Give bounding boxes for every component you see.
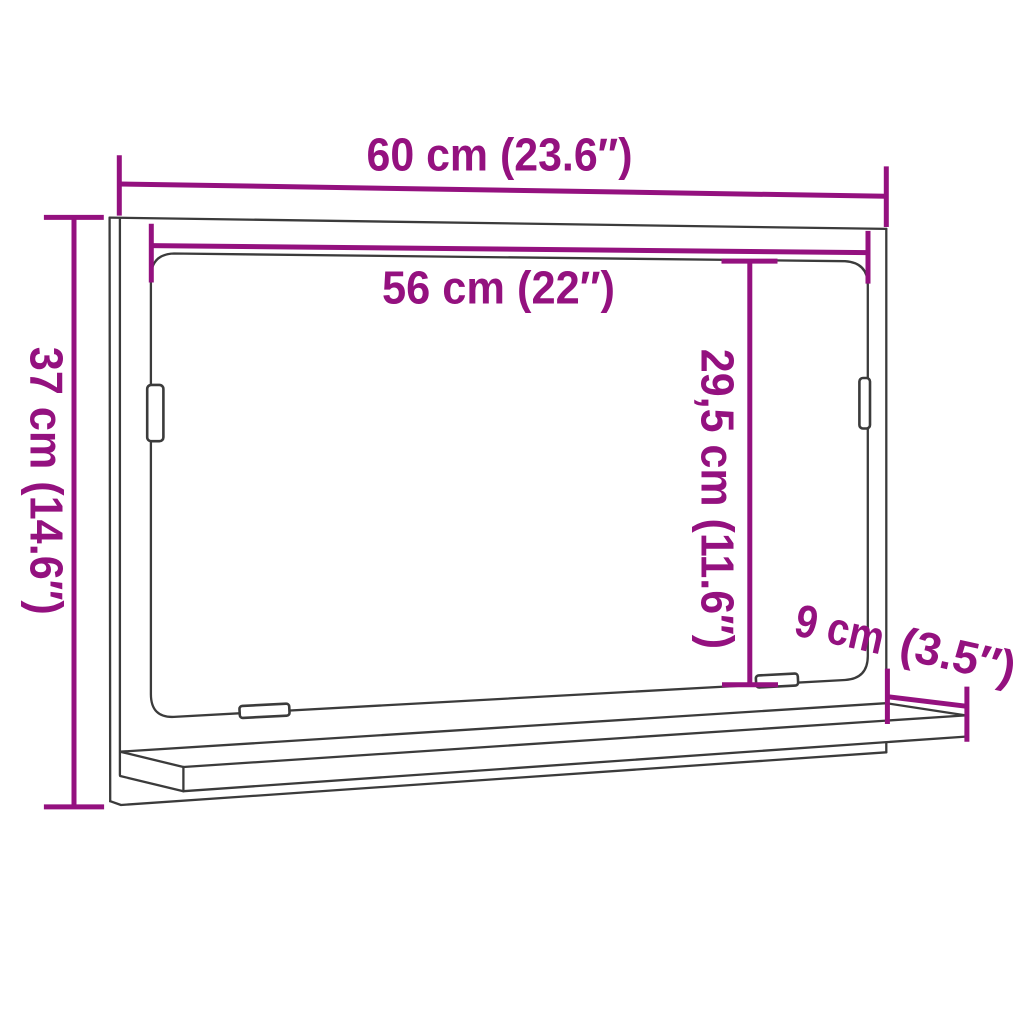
- svg-text:9 cm: 9 cm: [790, 594, 889, 664]
- svg-text:56 cm (22″): 56 cm (22″): [382, 262, 615, 314]
- svg-text:37 cm (14.6″): 37 cm (14.6″): [21, 347, 73, 615]
- svg-text:(3.5″): (3.5″): [895, 617, 1021, 693]
- svg-text:29,5 cm (11.6″): 29,5 cm (11.6″): [692, 349, 744, 649]
- svg-text:60 cm (23.6″): 60 cm (23.6″): [367, 129, 633, 181]
